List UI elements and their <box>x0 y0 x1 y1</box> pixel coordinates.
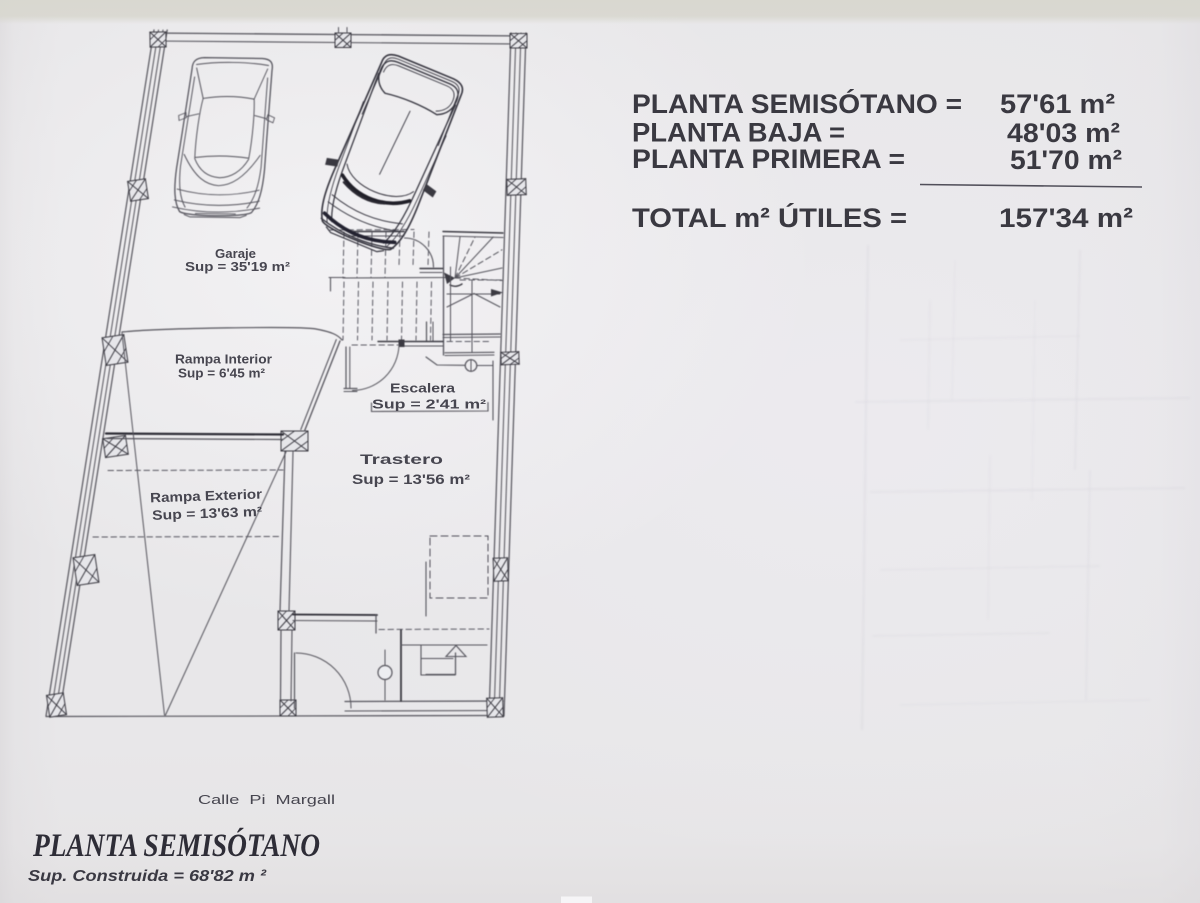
svg-text:157'34 m²: 157'34 m² <box>999 203 1133 233</box>
svg-text:Sup = 6'45 m²: Sup = 6'45 m² <box>178 367 265 381</box>
svg-text:51'70 m²: 51'70 m² <box>1010 145 1122 175</box>
svg-text:Sup = 13'56 m²: Sup = 13'56 m² <box>352 472 471 487</box>
svg-text:Sup = 35'19 m²: Sup = 35'19 m² <box>185 260 290 274</box>
svg-text:Sup = 13'63 m²: Sup = 13'63 m² <box>152 504 263 523</box>
svg-text:Trastero: Trastero <box>360 452 443 467</box>
svg-text:Rampa Interior: Rampa Interior <box>175 353 272 367</box>
svg-text:48'03 m²: 48'03 m² <box>1007 118 1120 148</box>
svg-text:Rampa Exterior: Rampa Exterior <box>150 486 263 505</box>
svg-text:PLANTA SEMISÓTANO =: PLANTA SEMISÓTANO = <box>632 88 962 119</box>
svg-text:PLANTA BAJA =: PLANTA BAJA = <box>632 118 845 148</box>
svg-text:Garaje: Garaje <box>215 247 256 261</box>
svg-text:Sup. Construida = 68'82 m ²: Sup. Construida = 68'82 m ² <box>28 868 267 885</box>
svg-text:57'61 m²: 57'61 m² <box>1000 89 1115 119</box>
svg-text:PLANTA PRIMERA =: PLANTA PRIMERA = <box>632 144 905 174</box>
svg-text:TOTAL m² ÚTILES =: TOTAL m² ÚTILES = <box>632 202 907 233</box>
svg-text:Escalera: Escalera <box>390 381 456 396</box>
svg-text:Sup = 2'41 m²: Sup = 2'41 m² <box>372 397 487 412</box>
svg-text:Calle Pi Margall: Calle Pi Margall <box>198 792 335 807</box>
svg-text:PLANTA SEMISÓTANO: PLANTA SEMISÓTANO <box>32 826 320 864</box>
